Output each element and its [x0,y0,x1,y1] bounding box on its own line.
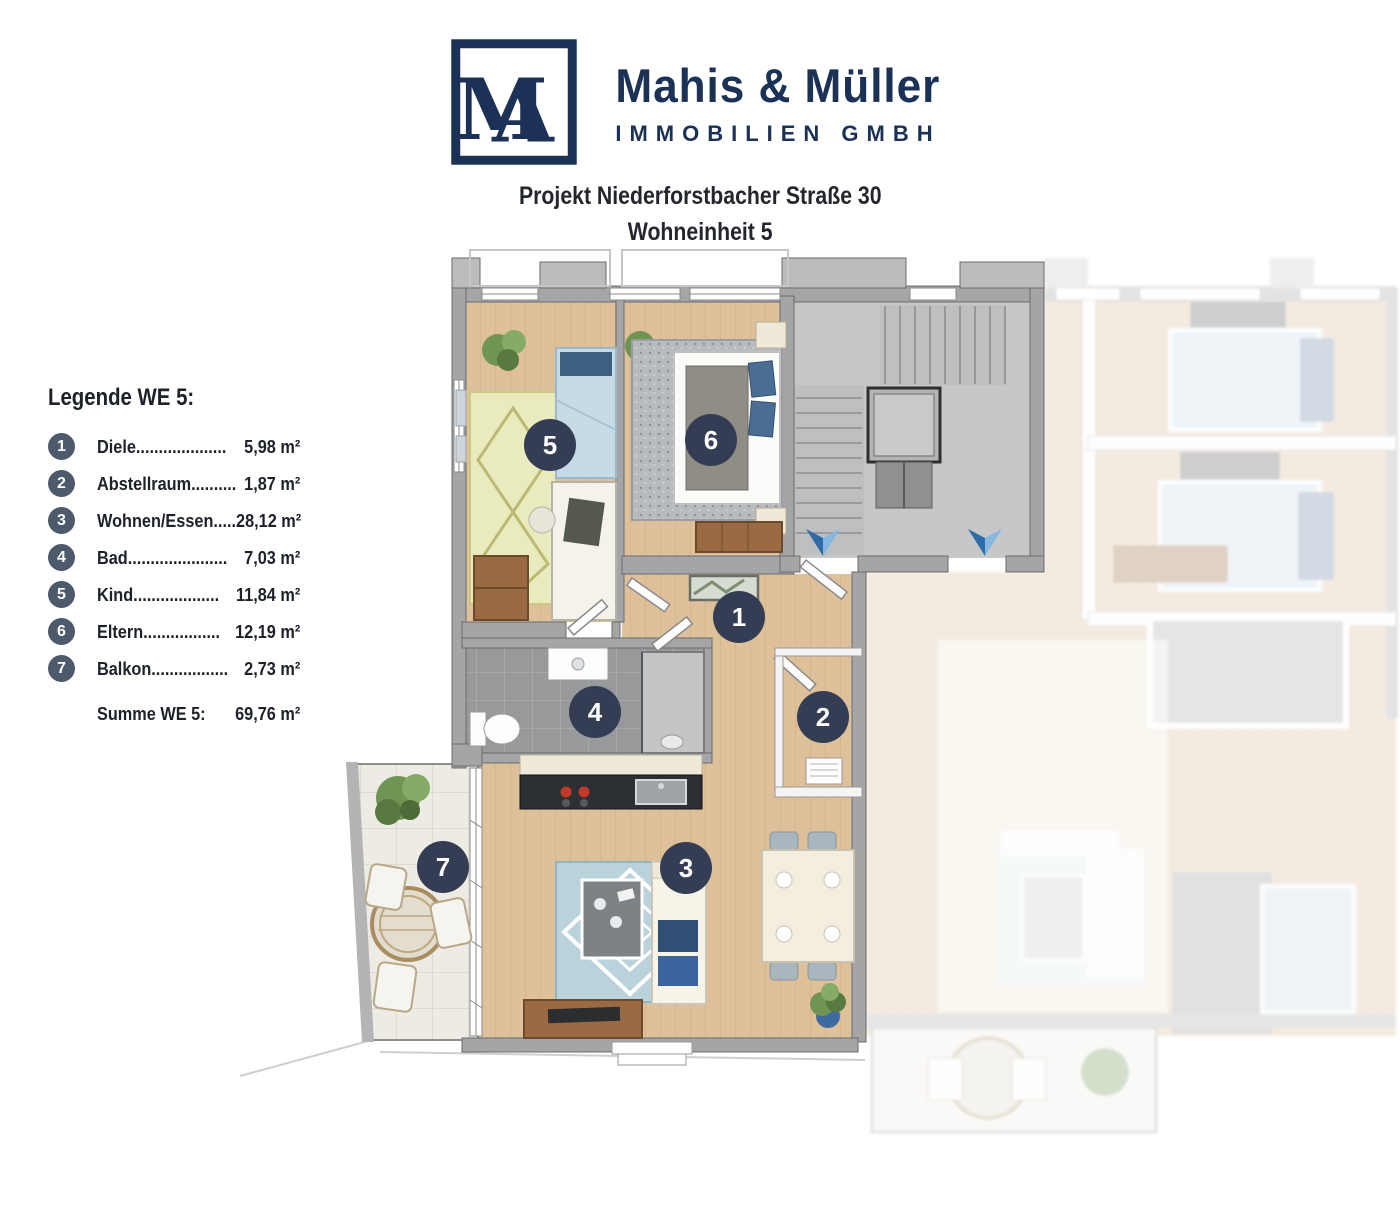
room-badge-wohnen-essen: 3 [660,842,712,894]
room-badge-bad: 4 [569,686,621,738]
svg-text:4: 4 [588,697,603,727]
room-badge-diele: 1 [713,591,765,643]
svg-text:3: 3 [679,853,693,883]
floorplan-illustration: 1 2 3 4 5 [0,0,1400,1218]
room-badge-balkon: 7 [417,841,469,893]
balcony-chair [373,962,417,1013]
shelf [806,758,842,784]
room-badge-kind: 5 [524,419,576,471]
page: M A Mahis & Müller IMMOBILIEN GMBH Proje… [0,0,1400,1218]
svg-text:6: 6 [704,425,718,455]
kitchen [520,755,702,809]
room-badge-abstellraum: 2 [797,691,849,743]
svg-text:1: 1 [732,602,746,632]
room-badge-eltern: 6 [685,414,737,466]
coffee-table [582,880,642,958]
wardrobe [696,522,782,552]
svg-text:2: 2 [816,702,830,732]
nightstand [756,322,786,348]
elevator [868,388,940,508]
svg-text:5: 5 [543,430,557,460]
entry-step [612,1042,692,1065]
toilet [470,712,520,746]
svg-text:7: 7 [436,852,450,882]
tv-sideboard [524,1000,642,1038]
dining-set [762,832,854,980]
balcony-chair [365,863,408,911]
